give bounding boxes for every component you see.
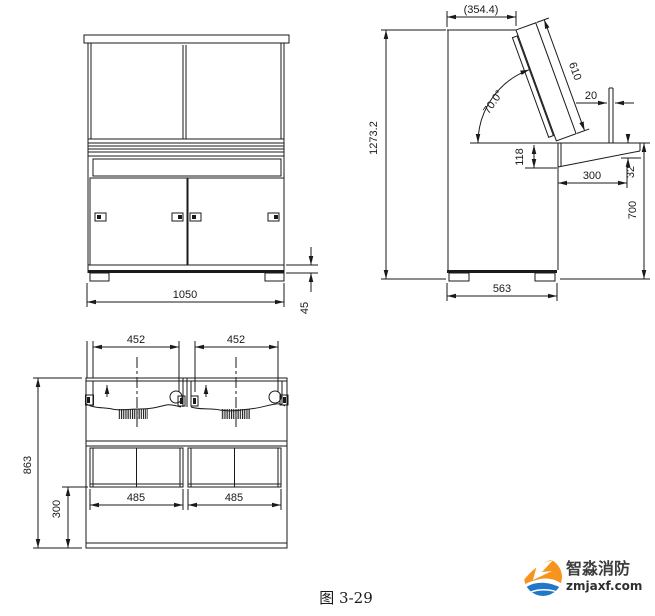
dim-overhang: 300: [558, 163, 627, 188]
plan-view: 452 452 863 300 485 485: [22, 334, 288, 548]
dim-opening-right: 485: [188, 489, 281, 510]
figure-caption: 图 3-29: [319, 589, 372, 607]
svg-text:452: 452: [227, 334, 245, 346]
svg-text:32: 32: [625, 166, 637, 178]
logo-name: 智淼消防: [566, 559, 630, 578]
dim-front-width: 1050: [87, 283, 284, 307]
technical-drawing: 1050 45 610: [0, 0, 655, 616]
dim-plan-depth: 863: [22, 378, 82, 548]
slanted-control-panel: 610: [510, 14, 600, 143]
front-foot-left: [90, 273, 109, 281]
opening-right: [188, 448, 281, 487]
dim-plan-rear: 300: [51, 487, 88, 548]
panel-face-strip: [512, 36, 553, 137]
front-base-band: [88, 270, 284, 273]
front-view: 1050 45: [84, 35, 318, 314]
logo-icon: [520, 556, 565, 600]
drawing-page: 1050 45 610: [0, 0, 655, 616]
side-foot-right: [535, 273, 555, 281]
svg-text:300: 300: [583, 170, 601, 182]
side-view: 610 70.0° 20 118 300: [368, 4, 650, 301]
drawer-band: [93, 159, 281, 176]
svg-text:700: 700: [627, 201, 639, 219]
front-top-cap: [84, 35, 289, 43]
svg-text:70.0°: 70.0°: [481, 88, 506, 116]
front-foot-right: [265, 273, 284, 281]
logo-site: zmjaxf.com: [566, 579, 642, 593]
svg-text:300: 300: [51, 500, 63, 518]
dim-front-drop: 118: [514, 145, 557, 168]
side-foot-left: [449, 273, 469, 281]
grommet-hole-right: [269, 391, 281, 403]
svg-text:485: 485: [127, 492, 145, 504]
grommet-hole-left: [170, 391, 182, 403]
svg-text:45: 45: [299, 302, 311, 314]
opening-left: [90, 448, 183, 487]
dim-lip-thickness: 20: [576, 90, 634, 103]
dim-front-foot-height: 45: [286, 247, 318, 314]
dim-total-height: 1273.2: [368, 30, 446, 279]
dim-depth: 563: [447, 283, 557, 301]
svg-text:1050: 1050: [173, 289, 197, 301]
svg-text:(354.4): (354.4): [464, 4, 499, 16]
dim-desk-height: 700: [560, 143, 650, 279]
svg-text:863: 863: [22, 456, 34, 474]
vent-grille-left: [118, 409, 148, 419]
svg-text:1273.2: 1273.2: [368, 121, 380, 155]
dim-panel-angle: 70.0°: [478, 70, 529, 143]
svg-text:452: 452: [127, 334, 145, 346]
svg-text:485: 485: [225, 492, 243, 504]
svg-text:563: 563: [493, 283, 511, 295]
dim-top-depth: (354.4): [447, 4, 516, 27]
dim-module-left: 452: [87, 334, 179, 392]
svg-text:20: 20: [585, 90, 597, 102]
watermark-logo: 智淼消防 zmjaxf.com: [520, 556, 642, 600]
dim-opening-left: 485: [90, 489, 183, 510]
dim-panel-length: 610: [566, 61, 584, 82]
dim-edge-height: 32: [621, 134, 641, 178]
svg-text:118: 118: [514, 148, 526, 166]
